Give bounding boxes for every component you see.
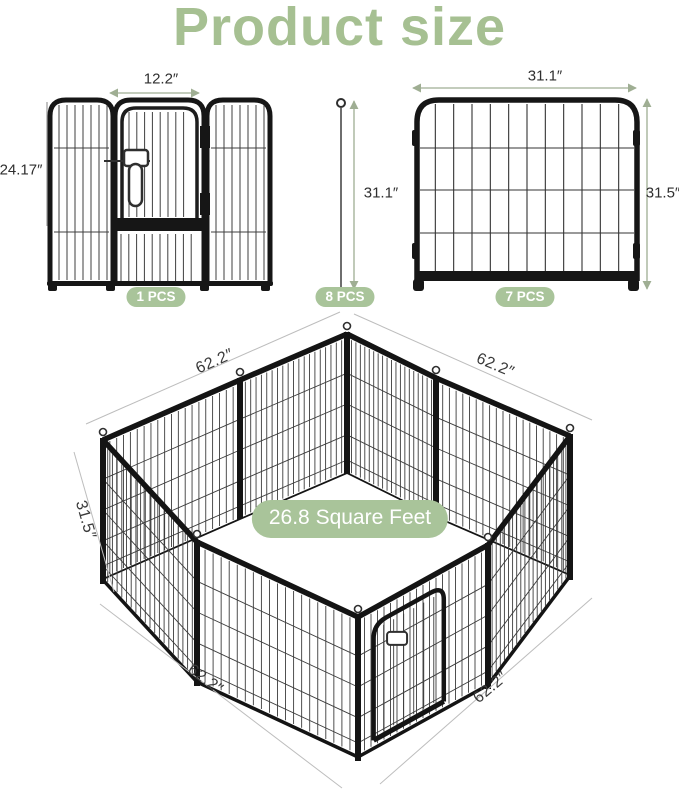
product-size-diagram: Product size 12.2″ 24.17″ 1 PCS 31.1″ 8 … [0, 0, 679, 791]
assembled-pen [100, 323, 574, 762]
ground-stake [337, 99, 345, 290]
panel-width-label: 31.1″ [528, 68, 563, 85]
door-panel-set [47, 100, 273, 291]
stake-height-label: 31.1″ [364, 185, 399, 202]
door-panel-count-badge: 1 PCS [126, 287, 185, 307]
panel-height-label: 31.5″ [646, 185, 679, 202]
panel-count-badge: 7 PCS [495, 287, 554, 307]
pen-area-badge: 26.8 Square Feet [252, 500, 448, 538]
door-width-label: 12.2″ [144, 71, 179, 88]
single-panel [412, 100, 640, 291]
stake-count-badge: 8 PCS [315, 287, 374, 307]
door-height-label: 24.17″ [0, 162, 42, 179]
page-title: Product size [0, 0, 679, 58]
fence-line-art [0, 0, 679, 791]
